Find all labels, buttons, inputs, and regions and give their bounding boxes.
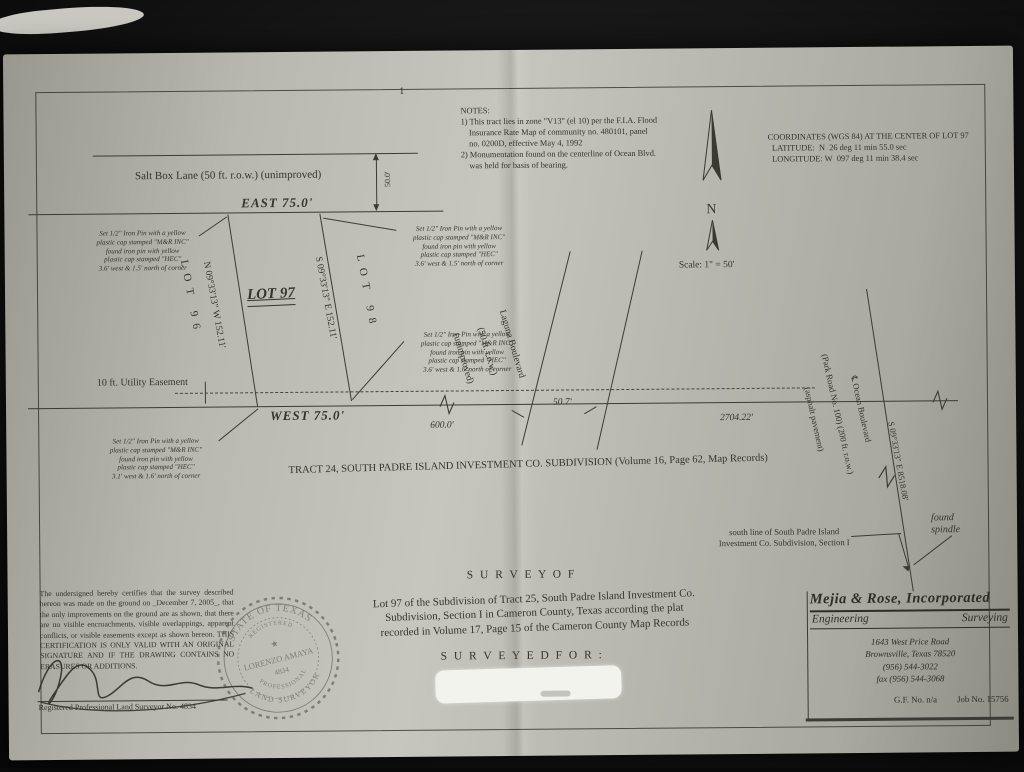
ocean-line2: (Park Road No. 100) (200 ft. r.o.w.): [820, 353, 856, 475]
found-spindle-label: found spindle: [931, 512, 960, 536]
south-line-note: south line of South Padre Island Investm…: [704, 526, 864, 550]
firm-name: Mejia & Rose, Incorporated: [810, 590, 1010, 613]
dim-50-7: 50.7': [553, 396, 572, 409]
firm-address: 1643 West Price Road Brownsville, Texas …: [810, 635, 1010, 686]
scale-label: Scale: 1" = 50': [679, 259, 735, 272]
firm-title-block: Mejia & Rose, Incorporated Engineering S…: [810, 590, 1011, 706]
firm-dept-engineering: Engineering: [812, 613, 869, 625]
photo-background: 1 NOTES: 1) This tract lies in zone "V13…: [0, 0, 1024, 768]
survey-paper: 1 NOTES: 1) This tract lies in zone "V13…: [3, 46, 1019, 761]
salt-box-lane-label: Salt Box Lane (50 ft. r.o.w.) (unimprove…: [135, 168, 321, 184]
surveyed-for-heading: S U R V E Y E D F O R :: [402, 648, 642, 665]
easement-tick: [205, 382, 206, 404]
page-mark: 1: [399, 85, 404, 98]
north-arrow-icon: N: [693, 110, 730, 255]
plat-drawing: 1 NOTES: 1) This tract lies in zone "V13…: [0, 0, 1024, 772]
dimension-break: [879, 465, 895, 489]
dim-600: 600.0': [430, 420, 454, 433]
laguna-line2: (50 ft. r.o.w.): [475, 326, 499, 376]
surveyor-registration-label: Registered Professional Land Surveyor No…: [39, 702, 196, 714]
pin-note-top-right: Set 1/2" Iron Pin with a yellow plastic …: [391, 224, 526, 269]
pin-note-top-left: Set 1/2" Iron Pin with a yellow plastic …: [76, 229, 208, 274]
arrowhead-up: [373, 153, 379, 160]
firm-departments: Engineering Surveying: [810, 611, 1010, 630]
seal-number: 4834: [273, 665, 290, 677]
utility-easement-label: 10 ft. Utility Easement: [97, 376, 188, 390]
seal-land-surveyor: LAND SURVEYOR: [247, 669, 327, 712]
survey-of-heading: S U R V E Y O F: [401, 567, 641, 584]
arrowhead-down: [373, 204, 379, 211]
seal-star-icon: ★: [269, 638, 279, 650]
firm-dept-surveying: Surveying: [962, 612, 1008, 624]
west-dimension-label: WEST 75.0': [270, 407, 345, 425]
gf-number: G.F. No. n/a: [894, 695, 937, 705]
north-label: N: [706, 202, 716, 217]
svg-text:LAND SURVEYOR: LAND SURVEYOR: [247, 669, 327, 712]
firm-numbers: G.F. No. n/a Job No. 15756: [811, 694, 1011, 706]
redaction-box: [435, 665, 622, 704]
smudge-mark: [541, 690, 571, 696]
row-width-label: 50.0': [383, 172, 394, 188]
lot97-label: LOT 97: [247, 284, 296, 307]
coordinates-block: COORDINATES (WGS 84) AT THE CENTER OF LO…: [768, 131, 1018, 166]
dimension-break: [440, 393, 454, 415]
pin-note-bottom-left: Set 1/2" Iron Pin with a yellow plastic …: [88, 437, 223, 482]
notes-block: NOTES: 1) This tract lies in zone "V13" …: [460, 104, 731, 172]
dim-2704: 2704.22': [720, 412, 753, 425]
east-dimension-label: EAST 75.0': [241, 195, 313, 213]
dimension-break: [933, 389, 947, 411]
job-number: Job No. 15756: [957, 694, 1009, 704]
